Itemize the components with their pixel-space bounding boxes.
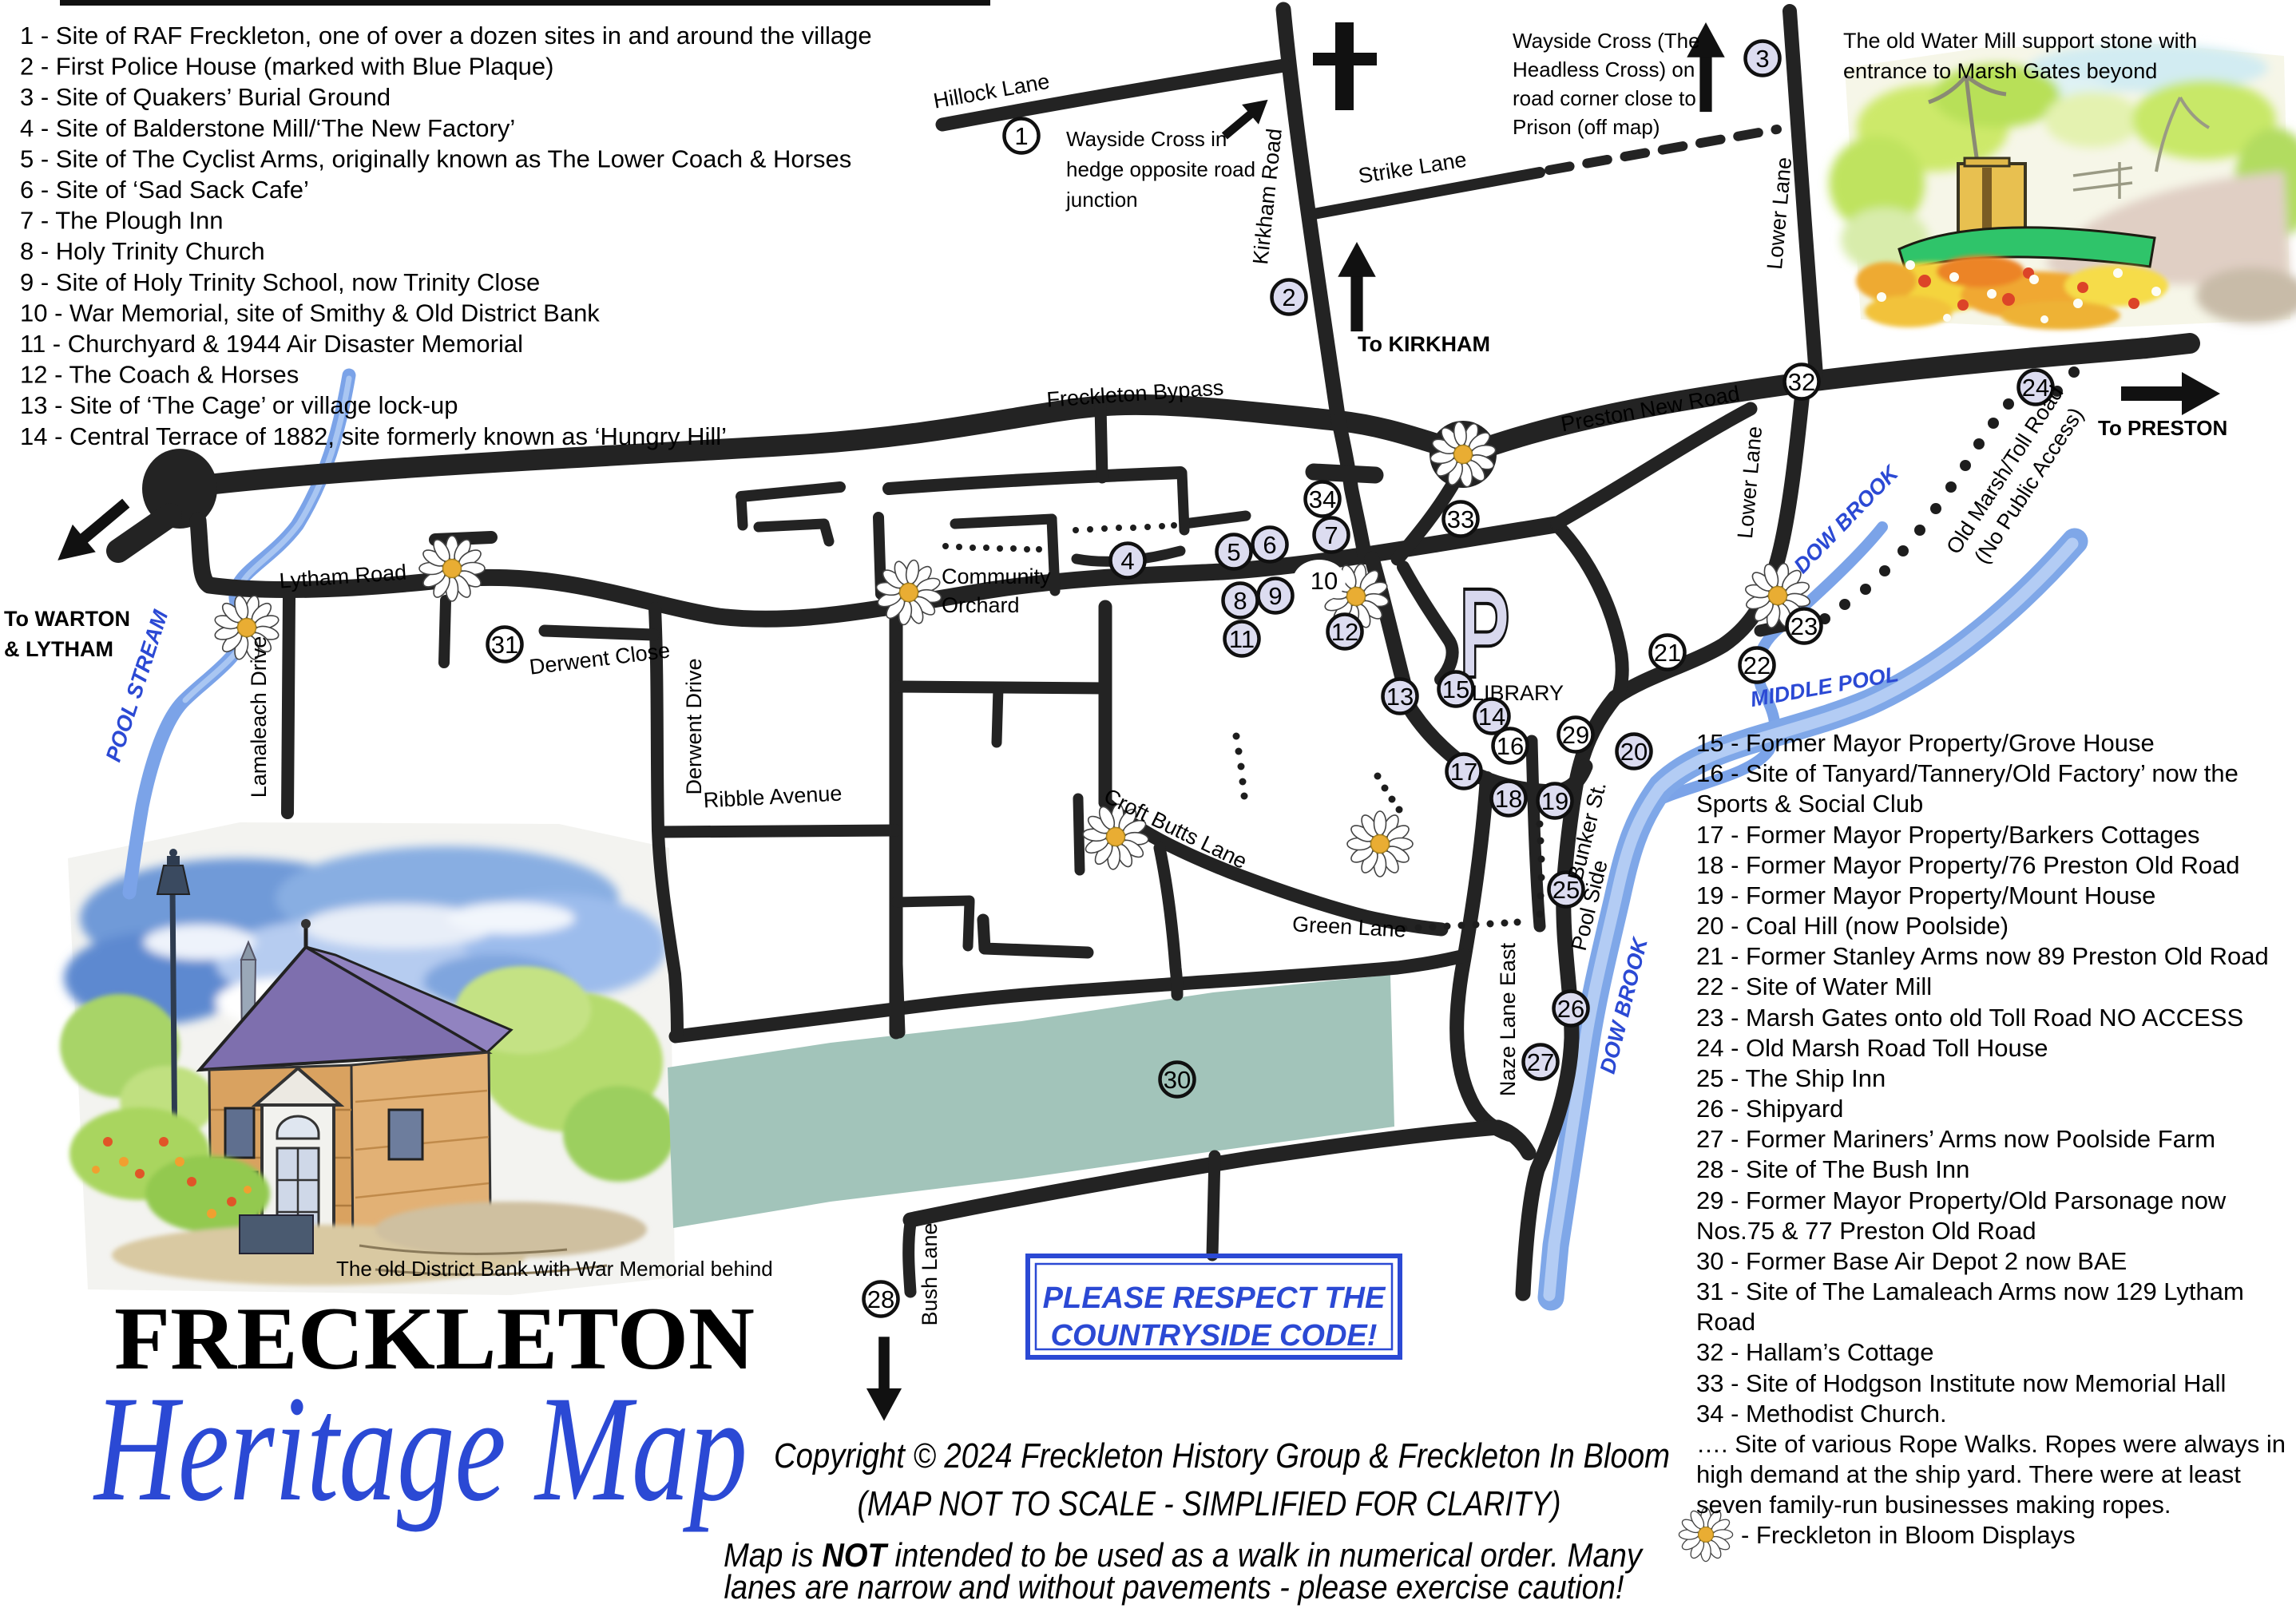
svg-text:19: 19 [1541, 787, 1568, 815]
svg-text:Orchard: Orchard [942, 593, 1020, 617]
svg-text:Lower Lane: Lower Lane [1763, 156, 1796, 271]
svg-text:Lower Lane: Lower Lane [1733, 426, 1767, 540]
svg-text:6 - Site of ‘Sad Sack Cafe’: 6 - Site of ‘Sad Sack Cafe’ [20, 176, 309, 204]
svg-text:4: 4 [1120, 547, 1134, 575]
svg-text:33: 33 [1447, 505, 1474, 533]
svg-text:15 - Former Mayor Property/Gro: 15 - Former Mayor Property/Grove House [1696, 729, 2155, 757]
svg-text:30 - Former Base Air Depot 2 n: 30 - Former Base Air Depot 2 now BAE [1696, 1247, 2127, 1275]
svg-text:21 - Former Stanley Arms now 8: 21 - Former Stanley Arms now 89 Preston … [1696, 942, 2269, 970]
svg-text:29: 29 [1562, 721, 1589, 749]
svg-text:20 - Coal Hill (now Poolside): 20 - Coal Hill (now Poolside) [1696, 912, 2009, 940]
svg-text:10: 10 [1311, 567, 1338, 595]
svg-text:Lamaleach Drive: Lamaleach Drive [247, 636, 271, 798]
svg-text:14: 14 [1478, 703, 1505, 731]
svg-text:18: 18 [1495, 785, 1522, 813]
svg-text:Ribble Avenue: Ribble Avenue [703, 781, 843, 812]
svg-text:The old District Bank with War: The old District Bank with War Memorial … [336, 1257, 773, 1281]
svg-text:road corner close to: road corner close to [1513, 86, 1696, 110]
svg-text:34 - Methodist Church.: 34 - Methodist Church. [1696, 1400, 1947, 1428]
svg-text:6: 6 [1263, 531, 1276, 559]
svg-text:27 - Former Mariners’ Arms now: 27 - Former Mariners’ Arms now Poolside … [1696, 1125, 2215, 1153]
svg-text:12 - The Coach & Horses: 12 - The Coach & Horses [20, 361, 299, 389]
svg-text:(MAP NOT TO SCALE - SIMPLIFIED: (MAP NOT TO SCALE - SIMPLIFIED FOR CLARI… [858, 1484, 1561, 1523]
svg-text:- Freckleton in Bloom Displays: - Freckleton in Bloom Displays [1741, 1521, 2076, 1549]
svg-text:16: 16 [1497, 732, 1524, 760]
svg-text:7: 7 [1324, 521, 1338, 549]
svg-text:26: 26 [1557, 995, 1584, 1023]
svg-text:9: 9 [1268, 582, 1282, 610]
svg-text:8 - Holy Trinity Church: 8 - Holy Trinity Church [20, 237, 265, 265]
svg-text:9 - Site of Holy Trinity Schoo: 9 - Site of Holy Trinity School, now Tri… [20, 268, 540, 296]
svg-text:14 - Central Terrace of 1882,: 14 - Central Terrace of 1882, site forme… [20, 422, 727, 450]
svg-text:26 - Shipyard: 26 - Shipyard [1696, 1095, 1843, 1123]
svg-text:34: 34 [1309, 485, 1336, 513]
svg-text:11 - Churchyard & 1944 Air Dis: 11 - Churchyard & 1944 Air Disaster Memo… [20, 330, 523, 358]
svg-text:18 - Former Mayor Property/76: 18 - Former Mayor Property/76 Preston Ol… [1696, 851, 2240, 879]
svg-text:13 - Site of ‘The Cage’ or vil: 13 - Site of ‘The Cage’ or village lock-… [20, 391, 458, 419]
svg-text:COUNTRYSIDE CODE!: COUNTRYSIDE CODE! [1051, 1319, 1378, 1353]
svg-text:23 - Marsh Gates onto old Toll: 23 - Marsh Gates onto old Toll Road NO A… [1696, 1004, 2243, 1032]
svg-text:30: 30 [1164, 1066, 1191, 1094]
svg-text:2: 2 [1282, 283, 1295, 311]
svg-text:To PRESTON: To PRESTON [2098, 416, 2227, 440]
svg-text:Sports & Social Club: Sports & Social Club [1696, 790, 1923, 818]
svg-text:Strike Lane: Strike Lane [1357, 148, 1469, 188]
svg-text:Copyright © 2024 Freckleton Hi: Copyright © 2024 Freckleton History Grou… [774, 1436, 1670, 1475]
svg-text:Road: Road [1696, 1308, 1755, 1336]
svg-text:junction: junction [1065, 188, 1138, 212]
svg-text:21: 21 [1654, 639, 1681, 667]
svg-text:13: 13 [1386, 683, 1414, 711]
svg-text:Wayside Cross (The: Wayside Cross (The [1513, 29, 1700, 53]
svg-text:1 - Site of RAF Freckleton, on: 1 - Site of RAF Freckleton, one of over … [20, 22, 872, 50]
svg-text:31: 31 [491, 631, 518, 659]
svg-text:10 - War Memorial, site of Smi: 10 - War Memorial, site of Smithy & Old … [20, 299, 600, 327]
svg-text:To KIRKHAM: To KIRKHAM [1358, 332, 1490, 356]
svg-text:12: 12 [1331, 618, 1358, 646]
svg-text:19 - Former Mayor Property/Mou: 19 - Former Mayor Property/Mount House [1696, 881, 2155, 909]
svg-text:PLEASE RESPECT THE: PLEASE RESPECT THE [1043, 1281, 1386, 1315]
svg-text:Prison (off map): Prison (off map) [1513, 115, 1660, 139]
svg-text:32 - Hallam’s Cottage: 32 - Hallam’s Cottage [1696, 1338, 1934, 1366]
svg-text:entrance to Marsh Gates beyond: entrance to Marsh Gates beyond [1843, 59, 2157, 83]
svg-text:22 - Site of Water Mill: 22 - Site of Water Mill [1696, 972, 1932, 1000]
svg-text:The old Water Mill support sto: The old Water Mill support stone with [1843, 29, 2197, 53]
svg-text:high demand at the ship yard.: high demand at the ship yard. There were… [1696, 1460, 2241, 1488]
svg-text:Community: Community [942, 564, 1051, 588]
svg-text:22: 22 [1743, 652, 1771, 679]
svg-text:seven family-run businesses ma: seven family-run businesses making ropes… [1696, 1491, 2171, 1519]
svg-text:4 - Site of Balderstone Mill/‘: 4 - Site of Balderstone Mill/‘The New Fa… [20, 114, 515, 142]
svg-text:27: 27 [1527, 1048, 1554, 1076]
svg-text:8: 8 [1233, 587, 1247, 615]
svg-text:7 - The Plough Inn: 7 - The Plough Inn [20, 207, 224, 235]
svg-text:5 - Site of The Cyclist Arms,: 5 - Site of The Cyclist Arms, originally… [20, 145, 851, 172]
svg-text:32: 32 [1788, 368, 1815, 396]
svg-text:Heritage Map: Heritage Map [93, 1365, 747, 1533]
svg-text:Derwent Close: Derwent Close [528, 638, 671, 679]
svg-text:To WARTON: To WARTON [4, 607, 130, 631]
svg-text:LIBRARY: LIBRARY [1472, 681, 1564, 705]
svg-text:Nos.75 & 77 Preston Old Road: Nos.75 & 77 Preston Old Road [1696, 1217, 2036, 1245]
svg-text:23: 23 [1790, 612, 1818, 640]
svg-text:3 - Site of Quakers’ Burial Gr: 3 - Site of Quakers’ Burial Ground [20, 83, 391, 111]
svg-text:17 - Former Mayor Property/Bar: 17 - Former Mayor Property/Barkers Cotta… [1696, 821, 2200, 849]
svg-text:Bush Lane: Bush Lane [918, 1222, 942, 1325]
svg-text:Green Lane: Green Lane [1291, 912, 1406, 941]
svg-text:Naze Lane East: Naze Lane East [1496, 942, 1520, 1096]
svg-text:33 - Site of Hodgson Institute: 33 - Site of Hodgson Institute now Memor… [1696, 1369, 2226, 1397]
svg-text:Headless Cross) on: Headless Cross) on [1513, 57, 1695, 81]
svg-text:24 - Old Marsh Road Toll House: 24 - Old Marsh Road Toll House [1696, 1034, 2048, 1062]
svg-text:Kirkham Road: Kirkham Road [1248, 127, 1287, 265]
svg-text:16 - Site of Tanyard/Tannery/O: 16 - Site of Tanyard/Tannery/Old Factory… [1696, 759, 2239, 787]
svg-text:3: 3 [1755, 45, 1769, 73]
svg-text:28 - Site of The Bush Inn: 28 - Site of The Bush Inn [1696, 1155, 1969, 1183]
svg-text:25 - The Ship Inn: 25 - The Ship Inn [1696, 1064, 1886, 1092]
svg-text:20: 20 [1620, 738, 1648, 766]
svg-text:17: 17 [1450, 758, 1477, 786]
svg-text:31 - Site of The Lamaleach Arm: 31 - Site of The Lamaleach Arms now 129 … [1696, 1277, 2244, 1305]
svg-text:29 - Former Mayor Property/Old: 29 - Former Mayor Property/Old Parsonage… [1696, 1186, 2227, 1214]
svg-text:2 - First Police House (marked: 2 - First Police House (marked with Blue… [20, 53, 553, 81]
svg-text:28: 28 [867, 1285, 894, 1313]
svg-text:15: 15 [1442, 675, 1469, 703]
svg-text:1: 1 [1014, 122, 1028, 150]
svg-text:5: 5 [1227, 538, 1240, 566]
svg-text:Wayside Cross in: Wayside Cross in [1066, 127, 1227, 151]
svg-text:lanes are narrow and without p: lanes are narrow and without pavements -… [724, 1568, 1624, 1606]
svg-text:…. Site of various Rope Walks.: …. Site of various Rope Walks. Ropes wer… [1696, 1430, 2286, 1458]
svg-text:& LYTHAM: & LYTHAM [4, 637, 113, 661]
svg-text:hedge opposite road: hedge opposite road [1066, 157, 1255, 181]
svg-text:Derwent Drive: Derwent Drive [682, 658, 706, 794]
svg-text:11: 11 [1229, 625, 1255, 653]
